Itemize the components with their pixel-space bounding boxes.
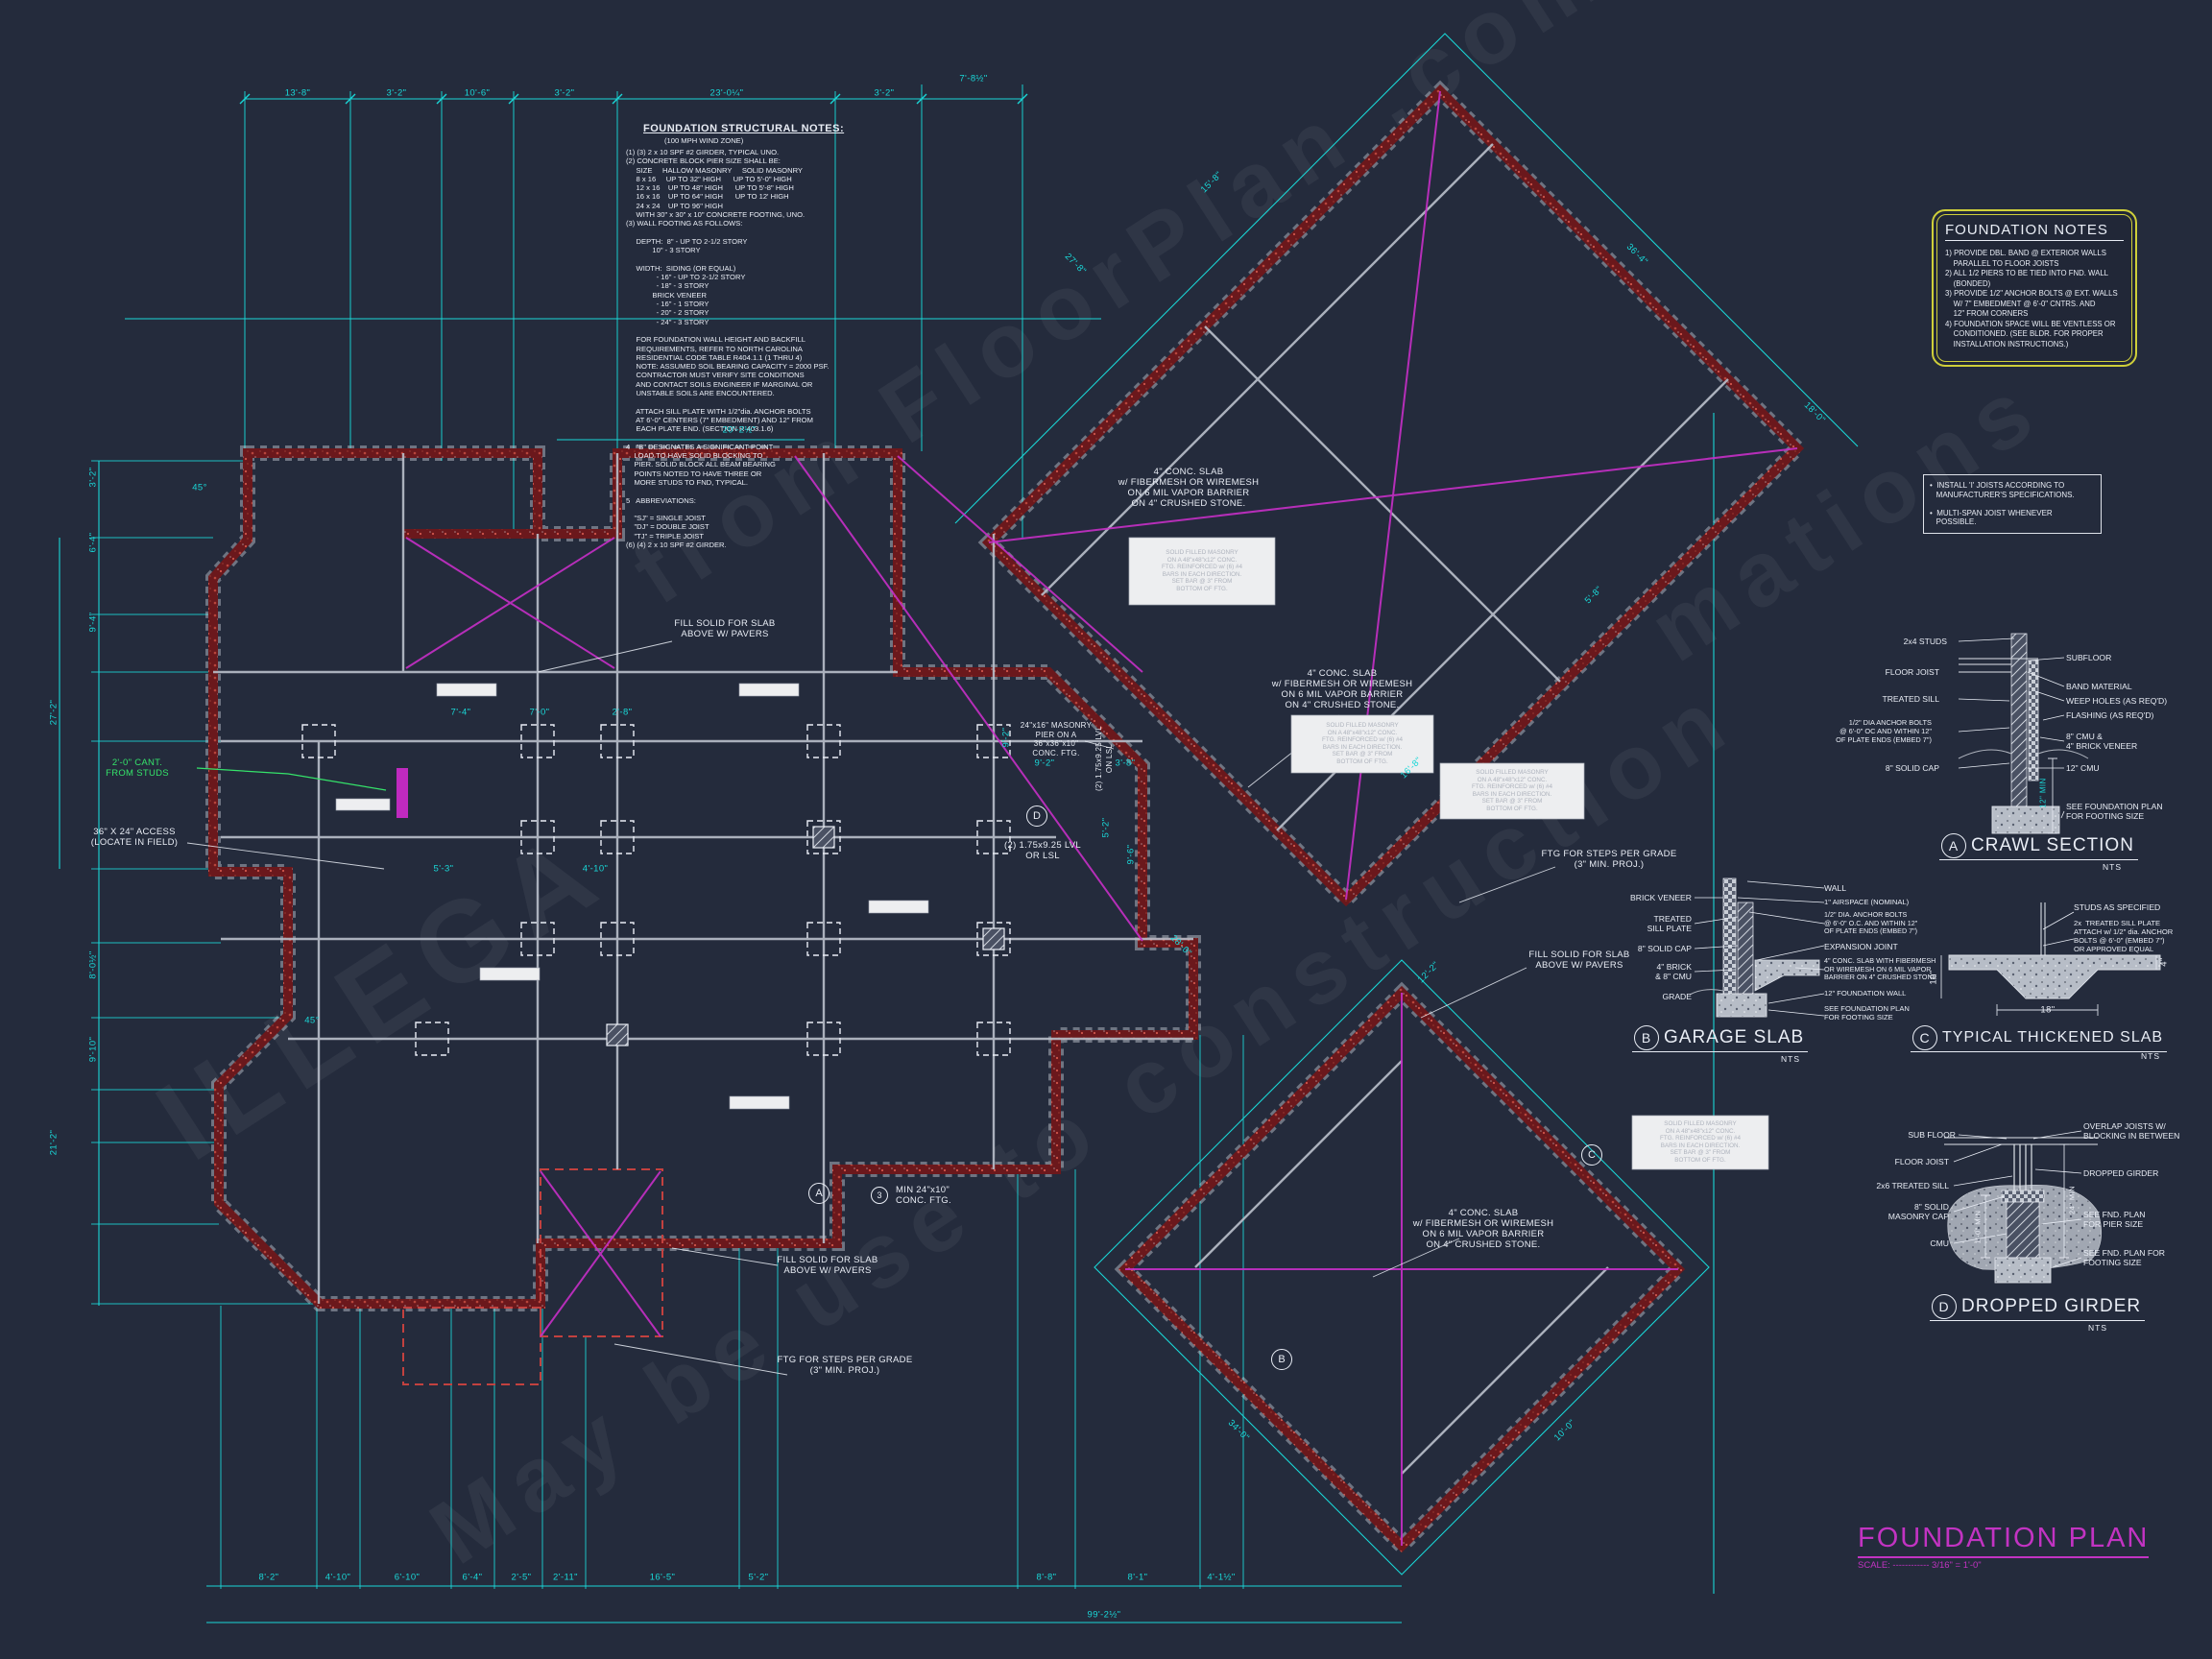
dim-interior: 9'-2" [1001,728,1012,748]
section-marker-c: C [1581,1144,1602,1166]
dim-left: 9'-4" [88,613,99,633]
garage-label: 1" AIRSPACE (NOMINAL) [1824,898,1909,907]
dim-left: 21'-2" [49,1130,60,1156]
dim-angle: 45° [304,1016,320,1026]
title-block: FOUNDATION PLAN SCALE: ------------ 3/16… [1858,1523,2149,1571]
dim-interior: 2'-8" [613,708,633,718]
dim-bottom: 2'-5" [512,1573,532,1583]
cantilever-note: 2'-0" CANT. FROM STUDS [106,757,169,779]
detail-c-letter: C [1912,1025,1937,1050]
dropped-label: SUB FLOOR [1908,1130,1956,1140]
crawl-label: 2x4 STUDS [1904,637,1947,646]
fill-solid-note: FILL SOLID FOR SLAB ABOVE W/ PAVERS [777,1255,878,1276]
dropped-label: SEE FND. PLAN FOR FOOTING SIZE [2083,1248,2165,1267]
structural-notes-subtitle: (100 MPH WIND ZONE) [664,136,876,145]
fill-solid-note: FILL SOLID FOR SLAB ABOVE W/ PAVERS [674,618,775,639]
structural-notes-body: (1) (3) 2 x 10 SPF #2 GIRDER, TYPICAL UN… [626,148,876,549]
crawl-label: FLOOR JOIST [1886,667,1939,677]
dimension-lines [60,34,1858,1623]
blueprint-page: { "colors": { "background": "#242b3c", "… [0,0,2212,1659]
detail-dropped-girder [1944,1131,2102,1283]
thickened-dim: 4" [2159,957,2170,966]
dropped-label: DROPPED GIRDER [2083,1168,2158,1178]
structural-notes-title: FOUNDATION STRUCTURAL NOTES: [643,123,876,134]
dim-bottom: 8'-2" [259,1573,279,1583]
dim-left: 6'-4" [88,533,99,553]
detail-b-title: BGARAGE SLAB [1632,1025,1808,1052]
dim-interior: 7'-0" [530,708,550,718]
fill-solid-note: FILL SOLID FOR SLAB ABOVE W/ PAVERS [1528,950,1629,971]
dim-top: 3'-2" [555,88,575,99]
dim-bottom: 8'-1" [1128,1573,1148,1583]
access-opening-marker [397,768,408,818]
solid-masonry-box-text: SOLID FILLED MASONRY ON A 48"x48"x12" CO… [1660,1120,1741,1165]
garage-label: 4" CONC. SLAB WITH FIBERMESH OR WIREMESH… [1824,957,1936,982]
crawl-label: SEE FOUNDATION PLAN FOR FOOTING SIZE [2066,802,2163,821]
detail-d-letter: D [1932,1294,1957,1319]
dim-interior: 9'-2" [1035,758,1055,769]
section-marker-a: A [808,1183,829,1204]
dim-interior: 3'-8" [1116,758,1136,769]
crawl-label: BAND MATERIAL [2066,682,2132,691]
cantilever-leader [197,768,386,790]
foundation-notes-box: FOUNDATION NOTES 1) PROVIDE DBL. BAND @ … [1932,209,2137,367]
detail-a-title: ACRAWL SECTION [1939,833,2138,860]
crawl-label: 1/2" DIA ANCHOR BOLTS @ 6'-0" OC AND WIT… [1836,719,1932,744]
ftg-steps-note: FTG FOR STEPS PER GRADE (3" MIN. PROJ.) [778,1355,913,1376]
lvl-note-vertical: (2) 1.75x9.25 LVL ON LSL [1094,726,1115,791]
dim-left: 9'-10" [88,1037,99,1063]
garage-label: GRADE [1662,992,1692,1001]
dropped-label: OVERLAP JOISTS W/ BLOCKING IN BETWEEN [2083,1121,2179,1141]
garage-label: TREATED SILL PLATE [1647,914,1692,933]
dim-bottom: 16'-5" [650,1573,676,1583]
detail-d-scale: NTS [2088,1323,2107,1333]
dim-top: 10'-6" [465,88,491,99]
dim-left: 27'-2" [49,700,60,726]
ftg-steps-note: FTG FOR STEPS PER GRADE (3" MIN. PROJ.) [1542,849,1677,870]
dropped-label: 2x6 TREATED SILL [1876,1181,1949,1190]
dim-top: 3'-2" [387,88,407,99]
garage-label: SEE FOUNDATION PLAN FOR FOOTING SIZE [1824,1005,1910,1022]
ijoist-note-box: • INSTALL 'I' JOISTS ACCORDING TO MANUFA… [1923,474,2102,534]
dim-bottom: 6'-4" [463,1573,483,1583]
dim-bottom: 4'-10" [325,1573,351,1583]
solid-masonry-box-text: SOLID FILLED MASONRY ON A 48"x48"x12" CO… [1322,722,1403,766]
lvl-note: (2) 1.75x9.25 LVL OR LSL [1004,840,1081,861]
thickened-dim: 18" [2040,1005,2055,1016]
keynote-hex-3: 3 [871,1187,888,1204]
crawl-label: TREATED SILL [1882,694,1939,704]
solid-masonry-box-text: SOLID FILLED MASONRY ON A 48"x48"x12" CO… [1162,549,1242,593]
dropped-label: FLOOR JOIST [1895,1157,1949,1166]
masonry-pier-note: 24"x16" MASONRY PIER ON A 36"x36"x10" CO… [1021,721,1093,757]
dim-bottom: 4'-1½" [1207,1573,1235,1583]
dim-top: 23'-0¼" [710,88,744,99]
detail-c-scale: NTS [2141,1051,2160,1061]
detail-a-scale: NTS [2103,862,2122,872]
dim-top: 7'-8½" [959,74,987,84]
dim-top: 3'-2" [875,88,895,99]
crawl-label: 8" SOLID CAP [1886,763,1939,773]
step-footing-dashed [403,1169,662,1384]
min-footing-note: MIN 24"x10" CONC. FTG. [896,1185,951,1206]
dim-top: 13'-8" [285,88,311,99]
foundation-notes-title: FOUNDATION NOTES [1945,222,2124,241]
solid-masonry-box-text: SOLID FILLED MASONRY ON A 48"x48"x12" CO… [1472,769,1552,813]
sheet-scale: SCALE: ------------ 3/16" = 1'-0" [1858,1560,2149,1571]
dim-interior: 5'-3" [434,864,454,875]
dim-bottom: 5'-2" [749,1573,769,1583]
detail-a-letter: A [1941,833,1966,858]
dropped-label: 8" SOLID MASONRY CAP [1888,1202,1949,1221]
crawl-label: SUBFLOOR [2066,653,2111,662]
thickened-label: STUDS AS SPECIFIED [2074,902,2160,912]
section-marker-b: B [1271,1349,1292,1370]
dim-interior: 7'-4" [451,708,471,718]
dim-interior: 20'-2½" [723,425,757,436]
detail-garage-slab [1690,878,1824,1017]
sheet-title: FOUNDATION PLAN [1858,1523,2149,1558]
detail-b-letter: B [1634,1025,1659,1050]
detail-d-title: DDROPPED GIRDER [1930,1294,2145,1321]
crawl-label: 12" CMU [2066,763,2100,773]
dim-left: 3'-2" [88,468,99,488]
thickened-label: 2x TREATED SILL PLATE ATTACH w/ 1/2" dia… [2074,919,2173,953]
pier-squares-solid [607,827,1004,1046]
access-note: 36" X 24" ACCESS (LOCATE IN FIELD) [91,827,178,848]
conc-slab-note: 4" CONC. SLAB w/ FIBERMESH OR WIREMESH O… [1272,668,1413,710]
garage-label: WALL [1824,883,1846,893]
dim-bottom: 6'-10" [395,1573,421,1583]
dropped-dim: 1'-0" MIN [1974,1211,1983,1244]
dropped-dim: 24" MIN [2068,1186,2077,1214]
dim-bottom: 8'-8" [1037,1573,1057,1583]
crawl-label: WEEP HOLES (AS REQ'D) [2066,696,2167,706]
garage-label: EXPANSION JOINT [1824,942,1898,951]
thickened-dim: 10" [1929,970,1939,984]
pier-squares [302,725,1010,1055]
dim-angle: 45° [192,483,207,493]
garage-label: 8" SOLID CAP [1638,944,1692,953]
dim-interior: 9'-6" [1126,845,1137,865]
ijoist-note-body: • INSTALL 'I' JOISTS ACCORDING TO MANUFA… [1930,481,2095,527]
detail-c-title: CTYPICAL THICKENED SLAB [1911,1025,2167,1052]
dim-bottom-total: 99'-2½" [1088,1610,1121,1621]
dropped-label: CMU [1930,1238,1949,1248]
garage-label: BRICK VENEER [1630,893,1692,902]
section-marker-d: D [1026,805,1047,827]
crawl-label: FLASHING (AS REQ'D) [2066,710,2153,720]
crawl-dim: 12" MIN [2039,778,2048,807]
crawl-label: 8" CMU & 4" BRICK VENEER [2066,732,2137,751]
structural-notes-block: FOUNDATION STRUCTURAL NOTES: (100 MPH WI… [626,123,876,549]
dim-left: 8'-0½" [88,950,99,978]
dropped-label: SEE FND. PLAN FOR PIER SIZE [2083,1210,2145,1229]
conc-slab-note: 4" CONC. SLAB w/ FIBERMESH OR WIREMESH O… [1118,467,1260,509]
foundation-notes-body: 1) PROVIDE DBL. BAND @ EXTERIOR WALLS PA… [1945,249,2124,349]
dim-interior: 4'-10" [583,864,609,875]
conc-slab-note: 4" CONC. SLAB w/ FIBERMESH OR WIREMESH O… [1413,1208,1554,1250]
garage-label: 4" BRICK & 8" CMU [1655,962,1692,981]
dim-interior: 5'-2" [1101,818,1112,838]
garage-label: 12" FOUNDATION WALL [1824,989,1906,998]
detail-b-scale: NTS [1781,1054,1800,1064]
dim-bottom: 2'-11" [553,1573,578,1583]
girder-tag-boxes [336,684,928,1109]
garage-label: 1/2" DIA. ANCHOR BOLTS @ 6'-0" O.C. AND … [1824,911,1917,936]
